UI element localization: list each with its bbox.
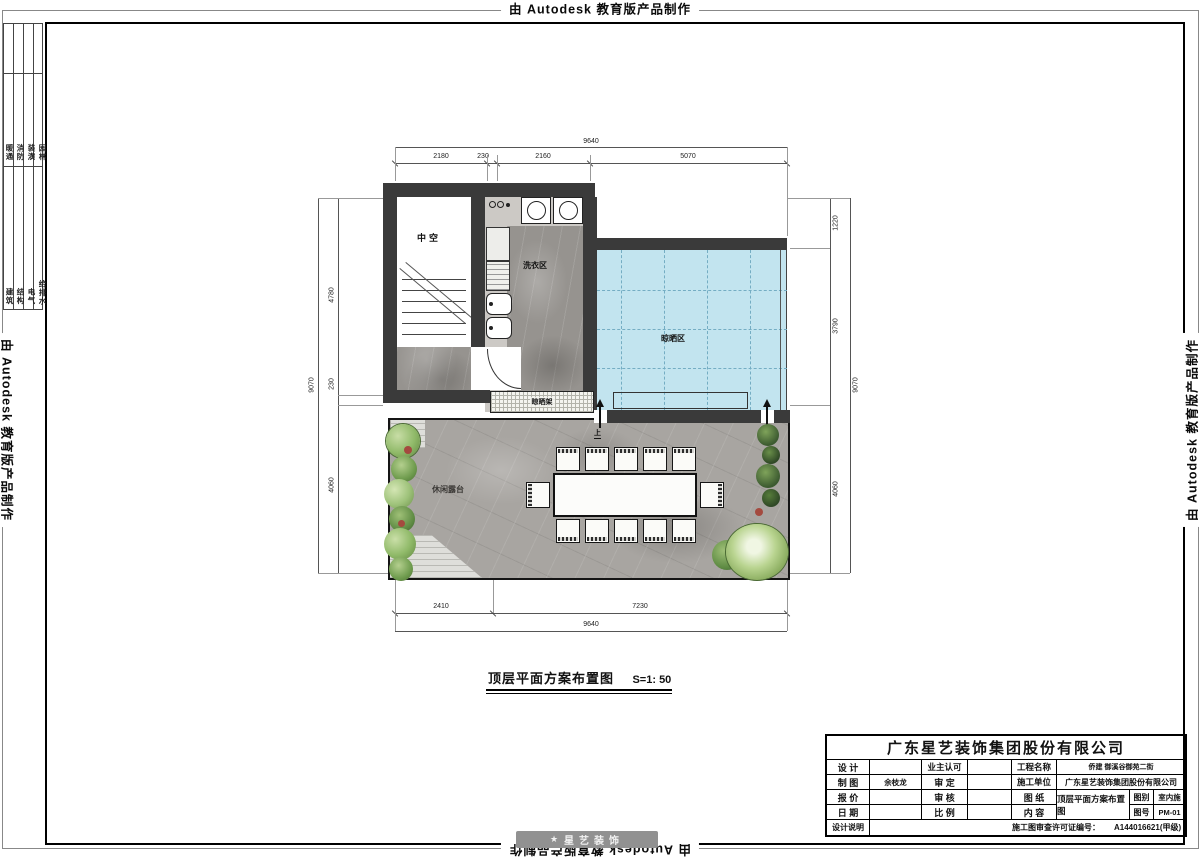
plant <box>757 424 779 446</box>
label-text: 审 核 <box>934 791 955 804</box>
value-text: PM-01 <box>1158 808 1180 817</box>
drying-rack: 晾晒架 <box>490 391 594 413</box>
dim-line <box>395 147 787 148</box>
dim-line <box>850 198 851 573</box>
value-text: 广东星艺装饰集团股份有限公司 <box>1065 777 1177 788</box>
value-check <box>968 790 1012 805</box>
up-label-text: 上 <box>594 430 601 437</box>
dim-label: 3790 <box>833 318 840 334</box>
label-text: 工程名称 <box>1017 761 1051 773</box>
label-text: 审 定 <box>934 776 955 789</box>
label-owner-approval: 业主认可 <box>922 760 968 775</box>
label-category: 图别 <box>1130 790 1154 805</box>
watermark-logo-icon: ★ <box>550 834 558 845</box>
stair-step <box>402 301 466 302</box>
chair <box>672 447 696 471</box>
drying-area: 晾晒区 <box>597 250 787 410</box>
chair <box>585 519 609 543</box>
washer-icon <box>521 197 551 224</box>
company-name: 广东星艺装饰集团股份有限公司 <box>827 736 1185 760</box>
value-text: 室内施 <box>1158 792 1181 803</box>
chair <box>672 519 696 543</box>
stair-step <box>402 290 466 291</box>
value-scale <box>968 805 1012 820</box>
value-design <box>870 760 922 775</box>
dim-label: 9070 <box>853 377 860 393</box>
label-text: 日 期 <box>838 806 859 819</box>
faucet-dot-icon <box>489 326 493 330</box>
label-contractor: 施工单位 <box>1012 775 1057 790</box>
edu-stamp-right: 由 Autodesk 教育版产品制作 <box>1182 333 1200 527</box>
ext-line <box>787 580 788 631</box>
caption-rule-thin <box>486 693 672 694</box>
ext-line <box>318 573 388 574</box>
washer-drum-icon <box>559 201 578 220</box>
plant-accent <box>404 446 412 454</box>
dim-label: 2160 <box>535 153 551 160</box>
drying-inner-line <box>780 250 781 410</box>
ext-line <box>787 147 788 236</box>
dim-label: 9640 <box>583 138 599 145</box>
title-block: 广东星艺装饰集团股份有限公司 设 计 业主认可 工程名称 侨建 御溪谷御苑二街 … <box>825 734 1187 837</box>
value-draft: 余枝龙 <box>870 775 922 790</box>
dim-line <box>395 631 787 632</box>
discipline-fire: 消防 <box>15 144 26 161</box>
wall-under-stair <box>383 390 490 403</box>
edu-stamp-top: 由 Autodesk 教育版产品制作 <box>501 0 699 18</box>
ext-line <box>790 405 830 406</box>
hob-dot-icon <box>497 201 504 208</box>
stair-step <box>402 323 466 324</box>
value-text: 余枝龙 <box>884 777 907 788</box>
label-design: 设 计 <box>827 760 870 775</box>
permit-row: 施工图审查许可证编号： A144016621(甲级) <box>870 820 1185 835</box>
plant <box>386 424 420 458</box>
chair <box>643 519 667 543</box>
dim-line <box>395 613 787 614</box>
chair <box>585 447 609 471</box>
sink-icon <box>486 293 512 315</box>
discipline-structure: 结构 <box>15 288 26 305</box>
drying-label: 晾晒区 <box>661 333 685 344</box>
vestibule-floor <box>397 347 471 390</box>
void-room <box>397 197 471 347</box>
label-text: 制 图 <box>838 776 859 789</box>
label-text: 报 价 <box>838 791 859 804</box>
dim-label: 2410 <box>433 603 449 610</box>
up-arrow-head-icon <box>763 399 771 407</box>
label-text: 业主认可 <box>927 761 961 773</box>
label-text: 图别 <box>1134 792 1150 803</box>
caption-scale: S=1: 50 <box>632 674 671 686</box>
laundry-shelf <box>486 261 510 291</box>
void-label: 中空 <box>417 231 441 244</box>
label-text: 图 纸 <box>1024 791 1045 804</box>
label-text: 施工单位 <box>1017 776 1051 788</box>
value-quote <box>870 790 922 805</box>
edu-stamp-right-text: 由 Autodesk 教育版产品制作 <box>1186 339 1200 521</box>
caption-title: 顶层平面方案布置图 <box>488 671 614 686</box>
value-contractor: 广东星艺装饰集团股份有限公司 <box>1057 775 1185 790</box>
ext-line <box>338 405 383 406</box>
value-number: PM-01 <box>1154 805 1185 820</box>
hob-dot-icon <box>489 201 496 208</box>
dim-label: 1220 <box>833 215 840 231</box>
discipline-hvac: 暖通 <box>4 144 15 161</box>
ext-line <box>787 198 850 199</box>
ext-line <box>487 155 488 181</box>
washer-drum-icon <box>527 201 546 220</box>
ext-line <box>497 155 498 181</box>
permit-number: A144016621(甲级) <box>1114 822 1181 833</box>
ext-line <box>790 248 830 249</box>
dim-label: 4060 <box>833 481 840 497</box>
chair <box>700 482 724 508</box>
grid-line <box>750 250 751 410</box>
ext-line <box>395 580 396 631</box>
value-date <box>870 805 922 820</box>
discipline-landscape: 园林 <box>37 144 48 161</box>
drying-low-box <box>613 392 748 409</box>
dim-label: 5070 <box>680 153 696 160</box>
faucet-dot-icon <box>489 302 493 306</box>
grid-line <box>597 368 787 369</box>
discipline-group-top: 暖通 消防 装潢 园林 <box>4 73 42 166</box>
up-arrow-head-icon <box>596 399 604 407</box>
wall-top <box>383 183 595 197</box>
edu-stamp-left: 由 Autodesk 教育版产品制作 <box>0 333 18 527</box>
chair <box>556 447 580 471</box>
watermark-badge: ★ 星艺装饰 <box>516 831 658 848</box>
plan-caption: 顶层平面方案布置图 S=1: 50 <box>488 668 671 688</box>
chair <box>526 482 550 508</box>
label-project-name: 工程名称 <box>1012 760 1057 775</box>
label-text: 比 例 <box>934 806 955 819</box>
laundry-cabinet <box>486 227 510 261</box>
watermark-text: 星艺装饰 <box>564 832 624 847</box>
terrace-label: 休闲露台 <box>432 484 464 495</box>
tree-large <box>726 524 788 580</box>
plant <box>756 464 780 488</box>
label-number: 图号 <box>1130 805 1154 820</box>
label-notes: 设计说明 <box>827 820 870 835</box>
dim-line <box>338 198 339 573</box>
plant-accent <box>755 508 763 516</box>
outdoor-table <box>553 473 697 517</box>
grid-line <box>707 250 708 410</box>
dim-label: 9640 <box>583 621 599 628</box>
discipline-plumbing: 给排水 <box>37 280 48 306</box>
label-text: 设计说明 <box>832 822 864 833</box>
ext-line <box>493 580 494 613</box>
dim-label: 4780 <box>329 287 336 303</box>
dim-label: 4060 <box>329 477 336 493</box>
value-category: 室内施 <box>1154 790 1185 805</box>
discipline-arch: 建筑 <box>4 288 15 305</box>
stair-step <box>402 334 466 335</box>
plant-accent <box>398 520 405 527</box>
plant <box>762 489 780 507</box>
permit-label: 施工图审查许可证编号： <box>1012 822 1100 833</box>
ext-line <box>318 198 383 199</box>
dim-label: 7230 <box>632 603 648 610</box>
ext-line <box>790 573 850 574</box>
ext-line <box>395 147 396 181</box>
company-name-text: 广东星艺装饰集团股份有限公司 <box>887 737 1125 758</box>
plant <box>762 446 780 464</box>
value-approve <box>968 775 1012 790</box>
label-date: 日 期 <box>827 805 870 820</box>
wall-left <box>383 183 397 402</box>
grid-line <box>597 290 787 291</box>
discipline-strip: 暖通 消防 装潢 园林 建筑 结构 电气 给排水 <box>3 23 43 310</box>
discipline-group-bottom: 建筑 结构 电气 给排水 <box>4 166 42 311</box>
dim-label: 9070 <box>309 377 316 393</box>
hob-dot-icon <box>506 203 510 207</box>
value-text: 侨建 御溪谷御苑二街 <box>1089 762 1154 772</box>
value-content: 顶层平面方案布置图 <box>1057 790 1130 820</box>
ext-line <box>590 155 591 181</box>
grid-line <box>621 250 622 410</box>
up-label: 上 <box>594 428 601 439</box>
plant <box>384 479 414 509</box>
label-scale: 比 例 <box>922 805 968 820</box>
dim-label: 230 <box>329 378 336 390</box>
washer-icon <box>553 197 583 224</box>
chair <box>614 519 638 543</box>
label-text: 设 计 <box>838 761 859 774</box>
up-arrow-icon <box>599 406 601 428</box>
label-text: 图号 <box>1134 807 1150 818</box>
drying-rack-label: 晾晒架 <box>530 397 555 407</box>
dim-line <box>318 198 319 573</box>
grid-line <box>664 250 665 410</box>
sink-icon <box>486 317 512 339</box>
edu-stamp-top-text: 由 Autodesk 教育版产品制作 <box>509 3 691 17</box>
wall-mid-vertical <box>583 197 597 412</box>
laundry-label: 洗衣区 <box>523 260 547 271</box>
label-text: 内 容 <box>1024 806 1045 819</box>
dim-line <box>830 198 831 573</box>
label-quote: 报 价 <box>827 790 870 805</box>
plant <box>391 456 417 482</box>
plant <box>384 528 416 560</box>
caption-rule <box>486 689 672 691</box>
chair <box>614 447 638 471</box>
dim-label: 2180 <box>433 153 449 160</box>
chair <box>643 447 667 471</box>
label-approve: 审 定 <box>922 775 968 790</box>
wall-drying-top <box>597 238 787 250</box>
wall-stair-right <box>471 197 485 347</box>
ext-line <box>338 395 383 396</box>
discipline-electrical: 电气 <box>26 288 37 305</box>
plant <box>389 557 413 581</box>
value-owner-approval <box>968 760 1012 775</box>
label-content: 内 容 <box>1012 805 1057 820</box>
value-project-name: 侨建 御溪谷御苑二街 <box>1057 760 1185 775</box>
value-text: 顶层平面方案布置图 <box>1057 793 1129 817</box>
stair-step <box>402 312 466 313</box>
label-check: 审 核 <box>922 790 968 805</box>
grid-line <box>597 329 787 330</box>
edu-stamp-left-text: 由 Autodesk 教育版产品制作 <box>0 339 14 521</box>
discipline-decor: 装潢 <box>26 144 37 161</box>
chair <box>556 519 580 543</box>
label-sheet: 图 纸 <box>1012 790 1057 805</box>
label-draft: 制 图 <box>827 775 870 790</box>
